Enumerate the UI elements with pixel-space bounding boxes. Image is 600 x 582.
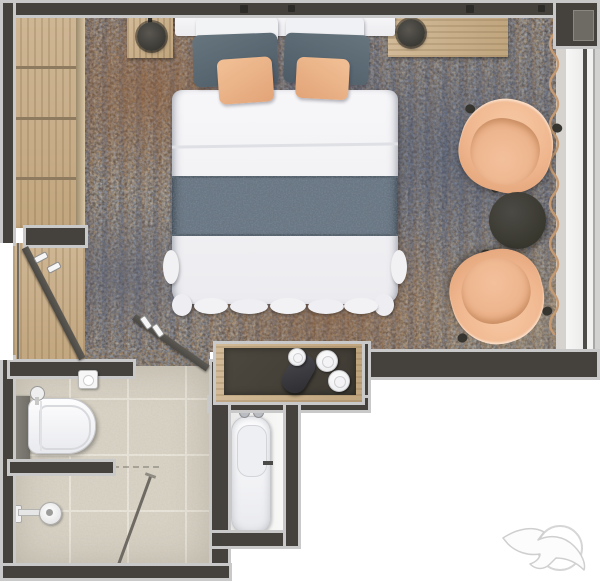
duvet-ruffle (174, 292, 396, 312)
duvet-side-bump (391, 250, 407, 284)
wall-left-upper (3, 3, 13, 243)
duvet-side-bump (163, 250, 179, 284)
window-band (566, 46, 583, 352)
wall-bottom-right (356, 352, 597, 377)
wall-bathroom-bottom (3, 566, 229, 578)
wall-bracket-mark (466, 5, 474, 13)
kettle-cup (288, 348, 306, 366)
towel-hook (263, 461, 273, 465)
wall-vanity-right (286, 405, 298, 546)
side-table (489, 192, 546, 249)
pillow-peach (216, 56, 274, 105)
shower-glass-dashed-line (113, 466, 159, 468)
entry-recess (0, 243, 13, 360)
wardrobe (13, 14, 85, 228)
wardrobe-shelf-line (13, 66, 76, 69)
wall-bracket-mark (240, 5, 248, 13)
window-outer-trim (595, 46, 600, 352)
toilet-cistern (10, 396, 30, 466)
cup-and-saucer (328, 370, 350, 392)
wall-corner-top-right (556, 3, 597, 46)
wall-bracket-mark (288, 5, 295, 12)
cup-and-saucer (316, 350, 338, 372)
pillow-peach (295, 57, 350, 101)
toilet-paper-holder (78, 370, 98, 389)
wardrobe-shelf-line (13, 177, 76, 180)
bed (172, 14, 398, 310)
wardrobe-side-rail (76, 14, 85, 228)
wall-wardrobe-step (26, 228, 85, 245)
entry-doorframe-line (17, 243, 19, 362)
shower-head-dot (46, 509, 53, 516)
wall-top (3, 3, 597, 15)
bed-runner (172, 176, 398, 236)
wall-panel (573, 10, 594, 41)
wardrobe-shelf-line (13, 117, 76, 120)
seagull-watermark-icon (498, 516, 592, 576)
toilet-tank-line (40, 401, 42, 451)
shower-partition (10, 462, 113, 473)
curtain-icon (543, 12, 565, 348)
floor-plan (0, 0, 600, 582)
lamp-right-icon (397, 19, 425, 47)
sink-bowl (237, 425, 267, 477)
wall-bracket-mark (538, 5, 545, 12)
sprayer-handle (35, 397, 39, 405)
toilet (28, 398, 96, 454)
lamp-left-icon (137, 22, 166, 51)
wall-bathroom-top (10, 362, 133, 376)
toilet-seat-line (39, 405, 91, 450)
vanity-sink-basin (231, 416, 271, 534)
